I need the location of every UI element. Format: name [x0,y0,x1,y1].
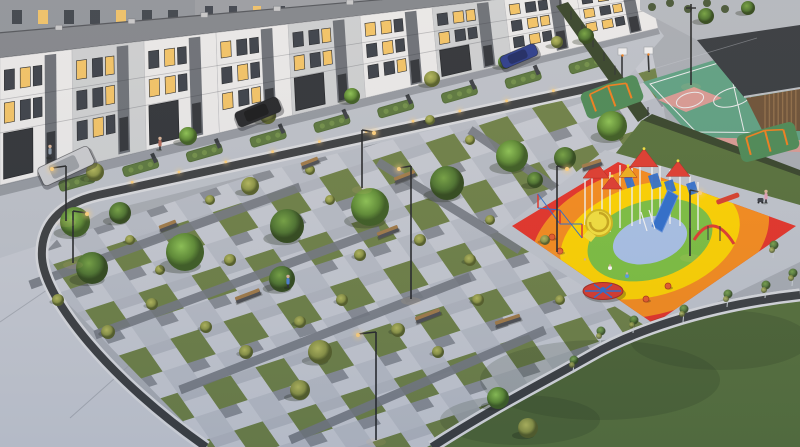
dark-window [177,47,186,65]
lit-window [165,75,176,94]
dark-window [33,97,42,118]
tree-canopy [166,233,204,271]
bollard-glow [129,179,135,185]
entrance-door [119,117,128,152]
bush [465,135,475,145]
dark-window [394,19,404,33]
bush [325,195,335,205]
bush [414,234,426,246]
dark-window [33,65,42,86]
lit-window [397,58,407,72]
roof-finial [627,164,630,167]
dark-window [20,99,30,121]
person-shadow [284,287,290,290]
child-head [609,264,611,266]
lit-window [252,87,261,104]
tree-canopy [430,166,464,200]
dark-window [238,89,249,107]
dark-window [106,115,115,135]
bush [648,3,656,11]
tree-canopy [551,36,563,48]
bush [101,325,115,339]
bush [425,115,435,125]
tree-canopy [487,387,509,409]
lit-window [439,31,450,44]
person-body [158,140,161,147]
lit-window [4,101,14,123]
child-figure [625,274,629,278]
lit-window [540,15,550,26]
sapling-canopy [679,311,685,317]
person-shadow [46,157,52,160]
backboard [618,48,627,55]
lit-window [93,117,103,137]
lit-window [365,22,376,36]
dark-window [251,62,260,79]
roof-finial [677,159,680,162]
roof-chimney [346,0,353,5]
spring-rider [665,283,671,289]
dark-window [309,29,320,44]
tree-canopy [179,127,197,145]
dark-window [149,50,159,69]
dark-window [615,16,625,26]
dark-window [77,90,87,110]
lamp-glow [48,165,57,174]
garage-door [149,100,179,145]
tree-canopy [527,172,543,188]
roof-chimney [274,6,281,11]
tree-canopy [344,88,360,104]
garage-door [294,73,325,111]
lit-window [237,64,248,81]
bush [294,316,306,328]
person-head [764,190,767,193]
garage-door [4,128,33,179]
child-head [626,272,628,274]
dark-window [511,20,522,32]
lit-window [584,8,596,18]
bollard-glow [270,149,276,155]
bush [336,294,348,306]
bush [224,254,236,266]
dark-window [178,74,187,92]
tree-canopy [290,380,310,400]
dark-window [90,10,100,24]
lit-window [527,17,538,28]
person-head [158,137,161,140]
dark-window [250,37,259,53]
dark-window [92,57,102,77]
roof-chimney [55,25,62,30]
lit-window [602,19,614,29]
lit-window [221,41,232,58]
carousel-hub [601,287,605,291]
sapling-canopy [596,333,602,339]
roof-finial [643,147,646,150]
lamp-glow [696,189,705,198]
dark-window [293,31,304,47]
bollard-glow [550,88,556,94]
lit-window [322,28,331,43]
dark-window [468,27,478,39]
tree-canopy [241,177,259,195]
tree-canopy [270,209,304,243]
dark-window [4,69,14,91]
dark-window [12,10,22,24]
lamp-glow [370,129,379,138]
bush [432,346,444,358]
tree-canopy [269,266,295,292]
person-shadow [156,149,162,152]
bush [146,298,158,310]
lit-window [323,50,333,65]
dark-window [237,39,248,56]
dark-window [64,10,74,24]
lit-window [381,20,392,34]
sapling-canopy [761,287,767,293]
tree-canopy [109,202,131,224]
bush [354,249,366,261]
child-head [584,258,586,260]
bush [540,235,550,245]
lit-window [529,33,540,45]
dark-window [455,29,466,42]
sapling-canopy [569,362,575,368]
dark-window [366,43,377,58]
lamp-glow [395,165,404,174]
bush [472,294,484,306]
bush [205,195,215,205]
tree-canopy [578,28,594,44]
bollard-glow [504,98,510,104]
courtyard-aerial-render [0,0,800,447]
spring-rider [643,296,649,302]
bush [52,294,64,306]
bush [125,235,135,245]
dark-window [599,5,611,15]
bollard-glow [316,139,322,145]
bush [485,215,495,225]
dark-window [525,1,536,12]
stroller-wheel [761,202,763,204]
bush [555,295,565,305]
dark-window [513,36,524,48]
sapling-canopy [629,322,635,328]
dark-window [437,13,448,26]
tree-canopy [308,340,332,364]
dark-window [538,0,548,11]
lit-window [76,59,86,79]
dark-window [384,61,395,76]
dark-window [77,120,87,141]
sapling-canopy [723,296,729,302]
person-body [48,148,51,155]
lamp-glow [563,165,572,174]
tree-canopy [76,252,108,284]
child-figure [583,260,587,264]
bollard-glow [410,118,416,124]
bush [391,323,405,337]
dark-window [395,39,405,53]
lit-window [453,11,464,24]
basketball-rim [621,54,623,56]
lit-window [149,78,160,97]
bush [239,345,253,359]
lit-window [294,55,305,71]
person-body [286,278,289,285]
dark-window [93,87,103,107]
bollard-glow [176,169,182,175]
lit-window [509,3,520,14]
lamp-glow [354,331,363,340]
tree-canopy [698,8,714,24]
lit-window [106,85,115,105]
sapling-canopy [788,275,794,281]
person-head [286,275,289,278]
sapling-canopy [769,247,775,253]
roof-finial [611,175,614,178]
lit-window [38,10,48,24]
tree-canopy [424,71,440,87]
lamp-glow [83,210,92,219]
lit-window [164,48,175,66]
basketball-rim [647,53,649,55]
lit-window [105,56,114,75]
tree-canopy [351,188,389,226]
backboard [644,47,653,54]
roof-chimney [201,13,208,18]
render-viewport [0,0,800,447]
tree-canopy [496,140,528,172]
lit-window [466,9,476,21]
stroller-wheel [758,202,760,204]
dark-window [368,64,379,79]
dark-window [310,52,321,68]
lit-window [613,3,623,13]
dark-window [542,30,552,41]
tree-canopy [518,418,538,438]
tree-canopy [741,1,755,15]
stroller [758,198,764,202]
tree-canopy [597,111,627,141]
lit-window [382,40,393,54]
bush [721,5,729,13]
bollard-glow [223,159,229,165]
bush [200,321,212,333]
person-body [764,193,767,200]
child-figure [608,266,612,270]
person-head [48,145,51,148]
bollard-glow [457,108,463,114]
lit-window [222,92,233,110]
dark-window [222,66,233,84]
roof-chimney [128,19,135,24]
lit-window [20,67,30,88]
bush [464,254,476,266]
